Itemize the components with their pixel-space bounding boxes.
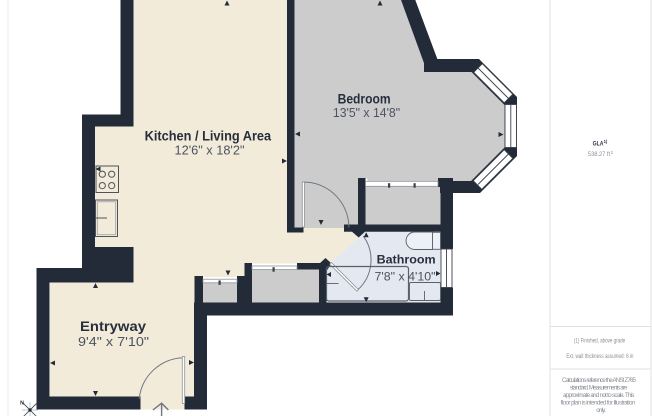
svg-text:Bathroom: Bathroom [377, 252, 436, 266]
svg-text:13'5" x 14'8": 13'5" x 14'8" [333, 105, 400, 120]
svg-text:12'6" x 18'2": 12'6" x 18'2" [175, 142, 245, 157]
svg-text:(1) Finished, above grade: (1) Finished, above grade [574, 337, 626, 344]
svg-text:Ext. wall thickness assumed: 6: Ext. wall thickness assumed: 6 in [566, 353, 634, 360]
svg-text:Entryway: Entryway [80, 319, 146, 335]
svg-text:approximate and not to scale.: approximate and not to scale. This [563, 392, 634, 399]
svg-text:9'4" x 7'10": 9'4" x 7'10" [78, 334, 149, 349]
svg-text:N: N [20, 401, 24, 407]
svg-text:E: E [37, 401, 41, 407]
svg-text:Calculations reference the ANS: Calculations reference the ANSI Z765 [562, 377, 637, 384]
svg-text:GLA: GLA [593, 141, 604, 148]
svg-text:538.27 ft: 538.27 ft [588, 151, 610, 158]
svg-text:standard. Measurements are: standard. Measurements are [570, 385, 628, 392]
svg-text:only.: only. [596, 407, 606, 414]
svg-text:1): 1) [604, 139, 608, 144]
svg-text:floor plan is intended for ill: floor plan is intended for illustration [561, 400, 636, 407]
svg-text:7'8" x 4'10": 7'8" x 4'10" [375, 270, 436, 284]
